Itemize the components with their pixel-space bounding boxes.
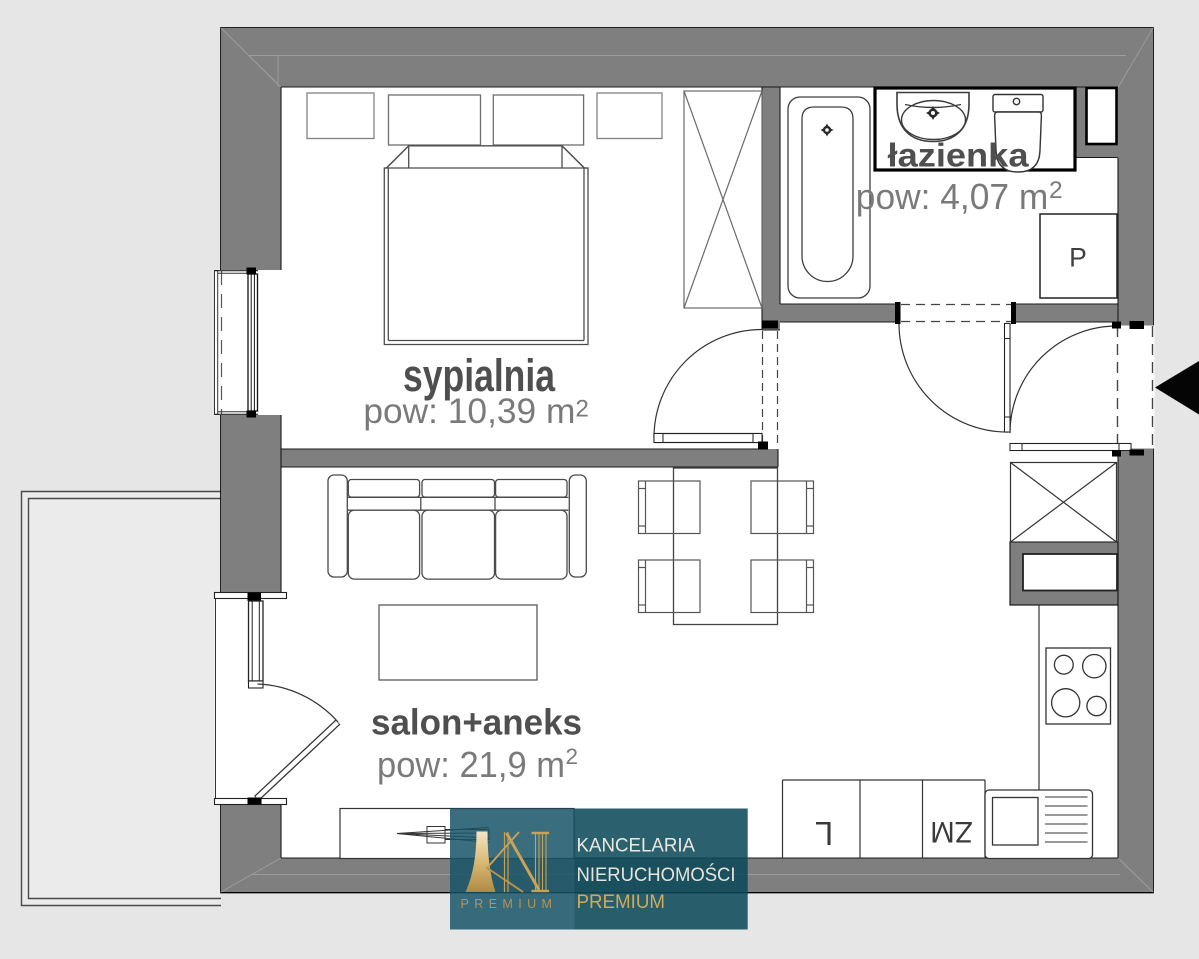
svg-text:L: L [815, 815, 833, 852]
svg-text:NIERUCHOMOŚCI: NIERUCHOMOŚCI [577, 862, 736, 886]
svg-text:pow: 10,39 m: pow: 10,39 m [363, 392, 575, 431]
svg-text:salon+aneks: salon+aneks [371, 702, 582, 743]
svg-text:2: 2 [1049, 177, 1063, 204]
svg-text:PREMIUM: PREMIUM [461, 897, 558, 911]
svg-text:PREMIUM: PREMIUM [577, 891, 666, 913]
svg-text:pow: 21,9 m: pow: 21,9 m [377, 744, 565, 785]
svg-text:ZM: ZM [930, 815, 973, 848]
svg-text:2: 2 [576, 396, 589, 423]
svg-text:pow: 4,07 m: pow: 4,07 m [856, 176, 1049, 217]
svg-text:2: 2 [566, 744, 579, 769]
svg-text:KANCELARIA: KANCELARIA [577, 835, 696, 857]
svg-text:P: P [1069, 243, 1087, 273]
svg-text:łazienka: łazienka [888, 137, 1030, 174]
